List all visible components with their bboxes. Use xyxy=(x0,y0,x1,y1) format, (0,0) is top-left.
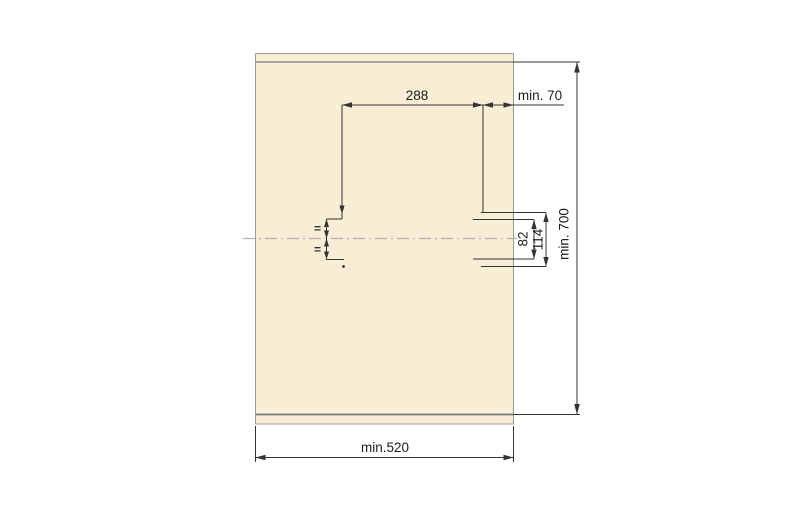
dim-114-arrow-bottom xyxy=(543,257,548,267)
technical-drawing: 288 min. 70 = = 82 114 min. 700 min.520 xyxy=(0,0,804,516)
dim-288-label: 288 xyxy=(406,88,429,103)
dim-min520-arrow-right xyxy=(504,455,514,460)
equal-mark-lower: = xyxy=(314,243,321,257)
dim-min520-arrow-left xyxy=(256,455,266,460)
dim-min700-label: min. 700 xyxy=(557,208,572,260)
left-hole-point-dot xyxy=(342,265,345,268)
dim-82-arrow-top xyxy=(531,220,536,230)
dim-114-arrow-top xyxy=(543,213,548,223)
drawing-canvas: 288 min. 70 = = 82 114 min. 700 min.520 xyxy=(0,0,804,516)
dim-82-label: 82 xyxy=(516,231,531,246)
dim-min520-label: min.520 xyxy=(361,440,409,455)
dim-min700-arrow-top xyxy=(574,62,580,73)
dim-114-label: 114 xyxy=(531,228,546,250)
equal-mark-upper: = xyxy=(314,222,321,236)
dim-min70-label: min. 70 xyxy=(518,88,562,103)
dim-min700-arrow-bottom xyxy=(574,404,580,415)
